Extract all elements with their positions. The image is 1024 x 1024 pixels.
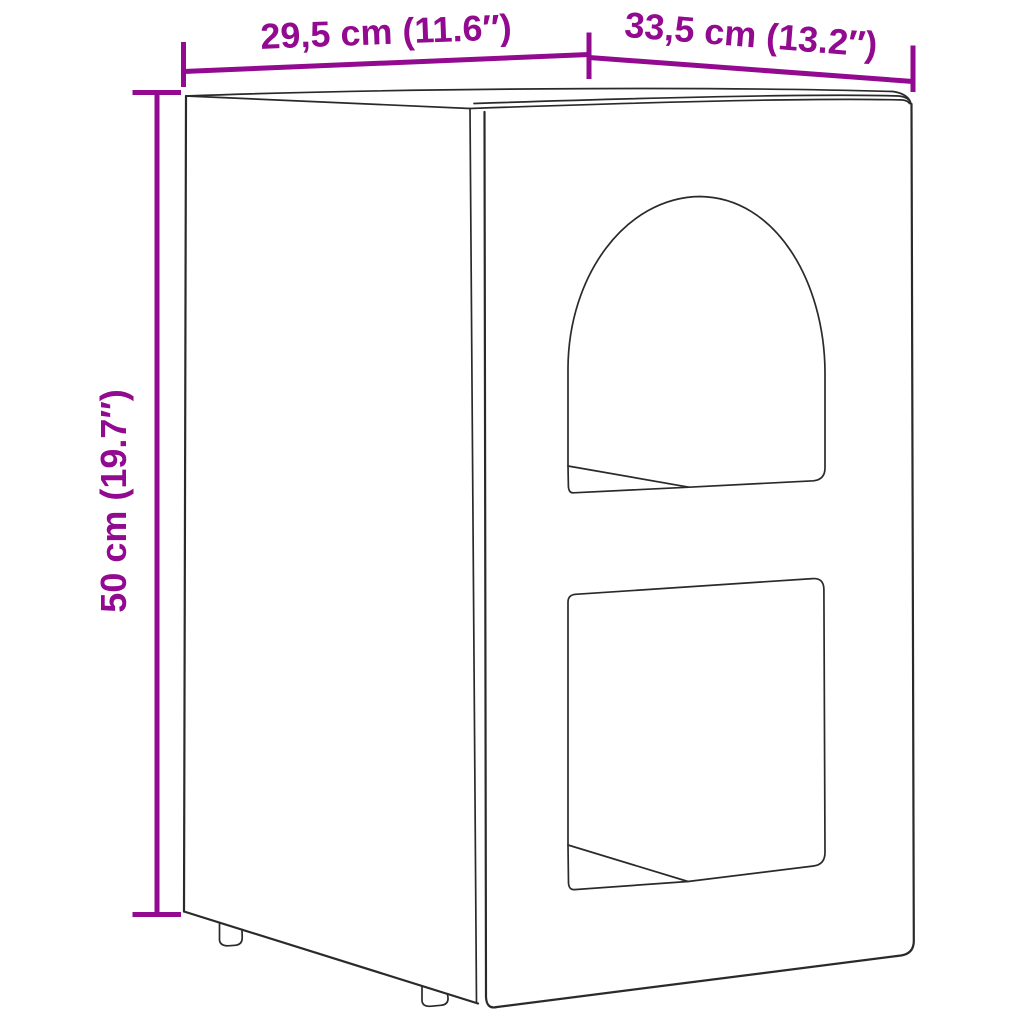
front-face-border xyxy=(485,104,914,1007)
height-dimension-label: 50 cm (19.7″) xyxy=(94,311,140,691)
side-bottom-edge xyxy=(184,912,478,1004)
side-left-edge xyxy=(184,96,186,912)
square-interior-floor-edge xyxy=(568,845,688,882)
cabinet-outline xyxy=(184,89,914,1008)
arch-opening xyxy=(568,197,825,493)
furniture-line-drawing xyxy=(0,0,1024,1024)
dimension-diagram: 29,5 cm (11.6″) 33,5 cm (13.2″) 50 cm (1… xyxy=(0,0,1024,1024)
side-front-vertical-edge xyxy=(470,109,477,1003)
dimension-lines xyxy=(133,33,914,915)
square-opening xyxy=(568,579,825,890)
side-top-edge xyxy=(186,96,470,109)
arch-interior-floor-edge xyxy=(568,466,689,487)
